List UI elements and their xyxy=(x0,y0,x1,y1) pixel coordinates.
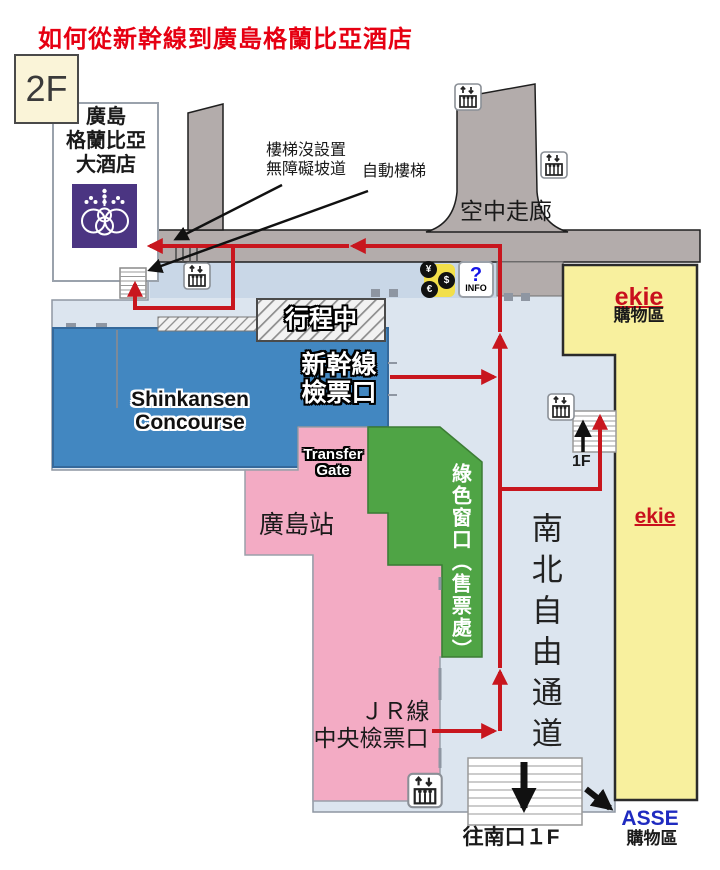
escalator-icon xyxy=(407,771,443,810)
walkway-right-section xyxy=(497,262,563,296)
escalator-note: 自動樓梯 xyxy=(362,163,426,181)
hotel-name-line2: 格蘭比亞 xyxy=(66,130,146,152)
asse-shop-label: ASSE xyxy=(621,807,678,831)
dollar-coin: $ xyxy=(438,272,455,289)
yen-coin: ¥ xyxy=(420,261,437,278)
info-label: INFO xyxy=(465,284,487,293)
north-building xyxy=(188,104,223,230)
hotel-name-line3: 大酒店 xyxy=(76,154,136,176)
transfer-gate-label-line2: Gate xyxy=(316,463,349,480)
page-title: 如何從新幹線到廣島格蘭比亞酒店 xyxy=(38,27,413,54)
floor-2f-badge: 2F xyxy=(15,55,78,123)
escalator-icon xyxy=(454,83,482,111)
escalator-icon xyxy=(183,262,211,290)
hiroshima-station-label: 廣島站 xyxy=(259,511,334,539)
jr-gate-label-line2: 中央檢票口 xyxy=(314,726,429,752)
escalator-icon xyxy=(547,393,575,421)
shinkansen-gate-label-line2: 檢票口 xyxy=(301,379,376,407)
info-question-mark: ? xyxy=(470,266,482,284)
jr-gate-label-line1: ＪＲ線 xyxy=(361,699,430,725)
escalator-icon xyxy=(540,151,568,179)
info-icon: ? INFO xyxy=(458,261,494,298)
south-exit-label: 往南口１F xyxy=(463,826,560,850)
no-ramp-note-line1: 樓梯沒設置 xyxy=(266,142,346,160)
hotel-logo xyxy=(72,184,137,248)
passage-stairs-1f xyxy=(573,411,616,452)
station-map: ¥ $ € ? INFO 如何從新幹線到廣島格蘭比亞酒店 2F 廣島 格蘭比亞 … xyxy=(0,0,720,870)
sky-corridor-label: 空中走廊 xyxy=(460,199,552,225)
currency-exchange-icon: ¥ $ € xyxy=(424,264,455,297)
concourse-label-line1: Shinkansen xyxy=(131,388,249,412)
euro-coin: € xyxy=(421,281,438,298)
hatch-strip xyxy=(158,317,257,331)
under-way-label: 行程中 xyxy=(285,307,357,334)
passage-label: 南北自由通道 xyxy=(526,512,561,758)
hotel-name-line1: 廣島 xyxy=(86,106,126,128)
no-ramp-note-line2: 無障礙坡道 xyxy=(266,161,346,179)
concourse-label-line2: Concourse xyxy=(135,411,245,435)
ekie-shop-type: 購物區 xyxy=(614,306,665,325)
floor-1f-label: 1F xyxy=(572,453,591,471)
ekie-shop-label-2: ekie xyxy=(635,505,676,529)
ticket-office-label: 綠色窗口（售票處） xyxy=(448,463,470,661)
asse-shop-type: 購物區 xyxy=(627,829,678,848)
shinkansen-gate-label-line1: 新幹線 xyxy=(301,351,376,379)
